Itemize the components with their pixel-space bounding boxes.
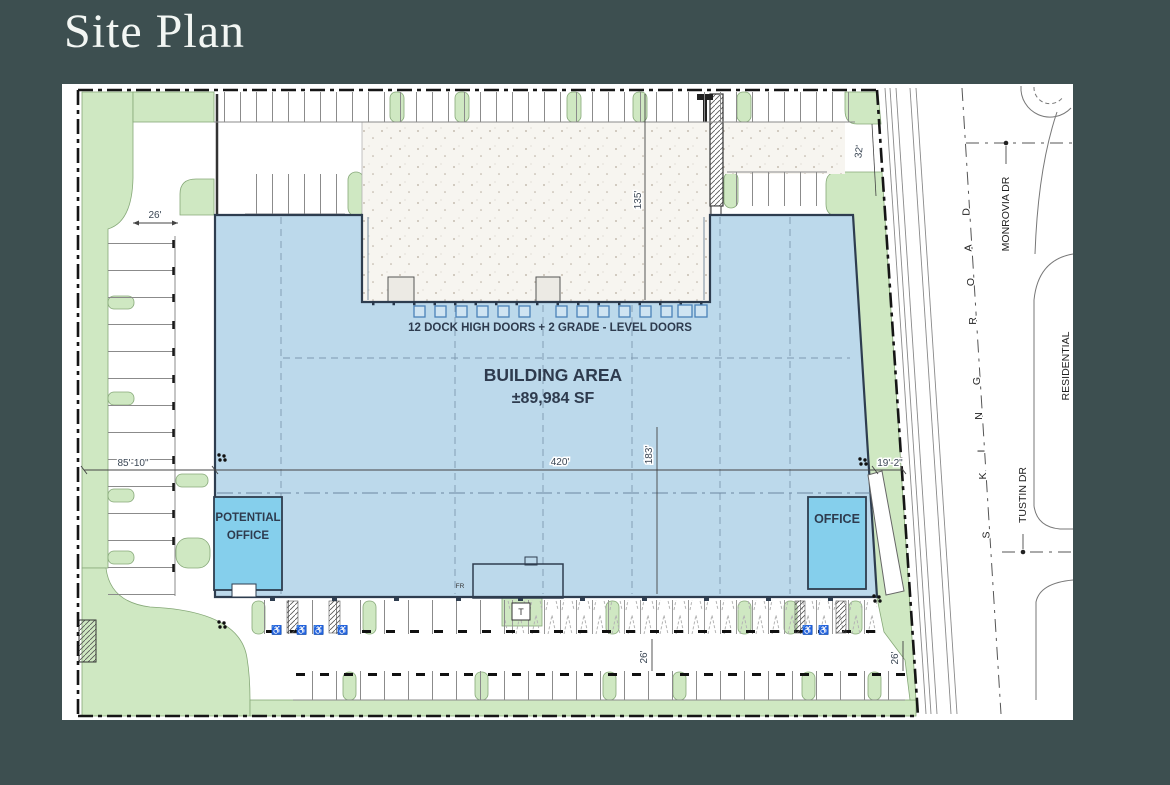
office-area	[808, 497, 866, 589]
dim-south-aisle-east: 26'	[890, 651, 901, 664]
potential-office-label-2: OFFICE	[227, 530, 269, 542]
svg-text:O: O	[965, 278, 977, 286]
office-label: OFFICE	[814, 512, 860, 526]
site-plan-svg: 12 DOCK HIGH DOORS + 2 GRADE - LEVEL DOO…	[62, 84, 1073, 720]
svg-text:D: D	[961, 208, 973, 216]
slide: { "page": { "title": "Site Plan" }, "the…	[0, 0, 1170, 785]
svg-text:♿: ♿	[296, 624, 307, 635]
dim-building-width: 420'	[551, 457, 570, 468]
fire-riser-label: FR	[456, 583, 465, 590]
building-area-label: BUILDING AREA	[484, 365, 623, 385]
green-nw-corner	[180, 179, 214, 215]
tustin-dr-label: TUSTIN DR	[1017, 467, 1029, 523]
green-south-strip	[250, 700, 916, 716]
page-title: Site Plan	[64, 4, 245, 59]
dim-east-setback: 19'-2"	[877, 458, 903, 469]
potential-office-area	[214, 497, 282, 590]
svg-text:♿: ♿	[313, 624, 324, 635]
building-area-sf: ±89,984 SF	[512, 390, 595, 407]
dim-building-depth: 183'	[644, 446, 655, 465]
dim-west-yard: 85'-10"	[117, 458, 148, 469]
dim-truck-court-depth: 135'	[633, 191, 644, 210]
svg-text:K: K	[977, 472, 989, 479]
svg-text:G: G	[971, 377, 983, 385]
potential-office-label-1: POTENTIAL	[215, 512, 280, 524]
dim-northeast-frontage: 32'	[853, 144, 866, 158]
transformer-label: T	[518, 607, 524, 617]
driveway-apron	[79, 620, 96, 662]
svg-text:S: S	[981, 531, 993, 538]
king-road-letters: D A O R G N I K S	[961, 208, 993, 539]
svg-text:♿: ♿	[802, 624, 813, 635]
svg-text:♿: ♿	[818, 624, 829, 635]
svg-text:I: I	[975, 450, 987, 453]
svg-text:♿: ♿	[271, 624, 282, 635]
site-plan-drawing: 12 DOCK HIGH DOORS + 2 GRADE - LEVEL DOO…	[62, 84, 1073, 720]
svg-text:R: R	[967, 317, 979, 325]
svg-text:N: N	[973, 412, 985, 420]
dock-doors-label: 12 DOCK HIGH DOORS + 2 GRADE - LEVEL DOO…	[408, 322, 692, 334]
svg-text:A: A	[963, 244, 975, 251]
dim-northwest-aisle: 26'	[148, 210, 161, 221]
green-nw-top	[133, 92, 214, 122]
residential-label: RESIDENTIAL	[1060, 331, 1072, 400]
monrovia-dr-label: MONROVIA DR	[1000, 176, 1012, 251]
dock-doors	[414, 305, 707, 317]
king-road	[885, 86, 1073, 714]
dim-south-aisle-west: 26'	[639, 650, 650, 663]
svg-text:♿: ♿	[337, 624, 348, 635]
